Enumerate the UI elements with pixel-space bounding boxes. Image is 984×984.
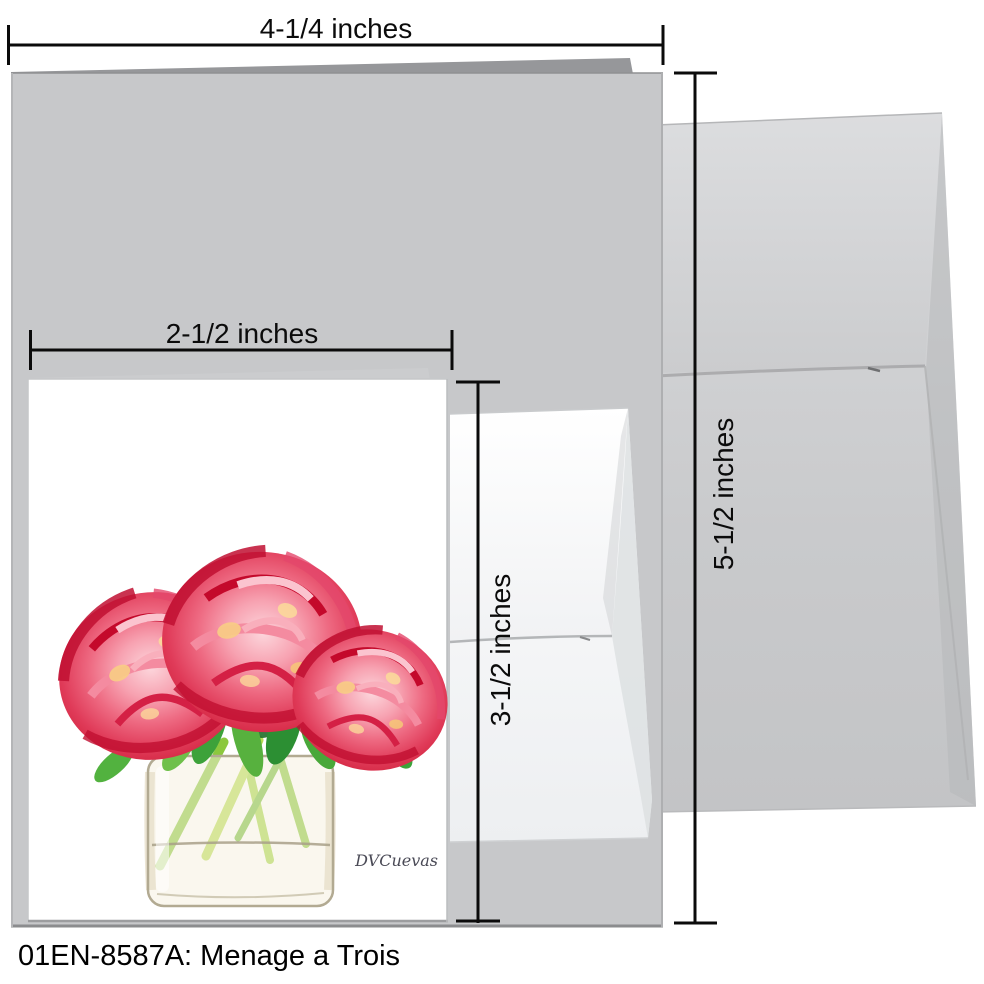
small-envelope <box>450 408 652 842</box>
dim-tick <box>29 330 32 370</box>
dim-label-folded-card-width: 4-1/4 inches <box>260 13 413 44</box>
dim-tick <box>674 922 717 925</box>
dim-tick <box>451 330 454 370</box>
large-envelope-flap <box>656 113 942 373</box>
dim-tick <box>674 72 717 75</box>
vase <box>148 756 333 906</box>
dim-tick <box>7 25 10 65</box>
dim-line <box>477 382 480 923</box>
mockup-scene: DVCuevas 4-1/4 inches 2-1/2 inches <box>0 0 984 984</box>
dim-label-folded-card-height: 5-1/2 inches <box>708 418 739 571</box>
folded-card-back-page <box>11 58 633 74</box>
dim-tick <box>662 25 665 65</box>
dimension-folded-card-width: 4-1/4 inches <box>7 13 665 65</box>
dim-label-insert-card-height: 3-1/2 inches <box>485 574 516 727</box>
product-mockup-image: DVCuevas 4-1/4 inches 2-1/2 inches <box>0 0 984 984</box>
vase-highlight <box>156 766 169 892</box>
dim-line <box>694 73 697 924</box>
large-envelope <box>628 113 976 812</box>
dim-label-insert-card-width: 2-1/2 inches <box>166 318 319 349</box>
dim-tick <box>456 920 500 923</box>
artist-signature: DVCuevas <box>354 851 438 870</box>
dim-tick <box>456 381 500 384</box>
insert-card: DVCuevas <box>28 368 463 922</box>
product-caption: 01EN-8587A: Menage a Trois <box>18 941 400 973</box>
